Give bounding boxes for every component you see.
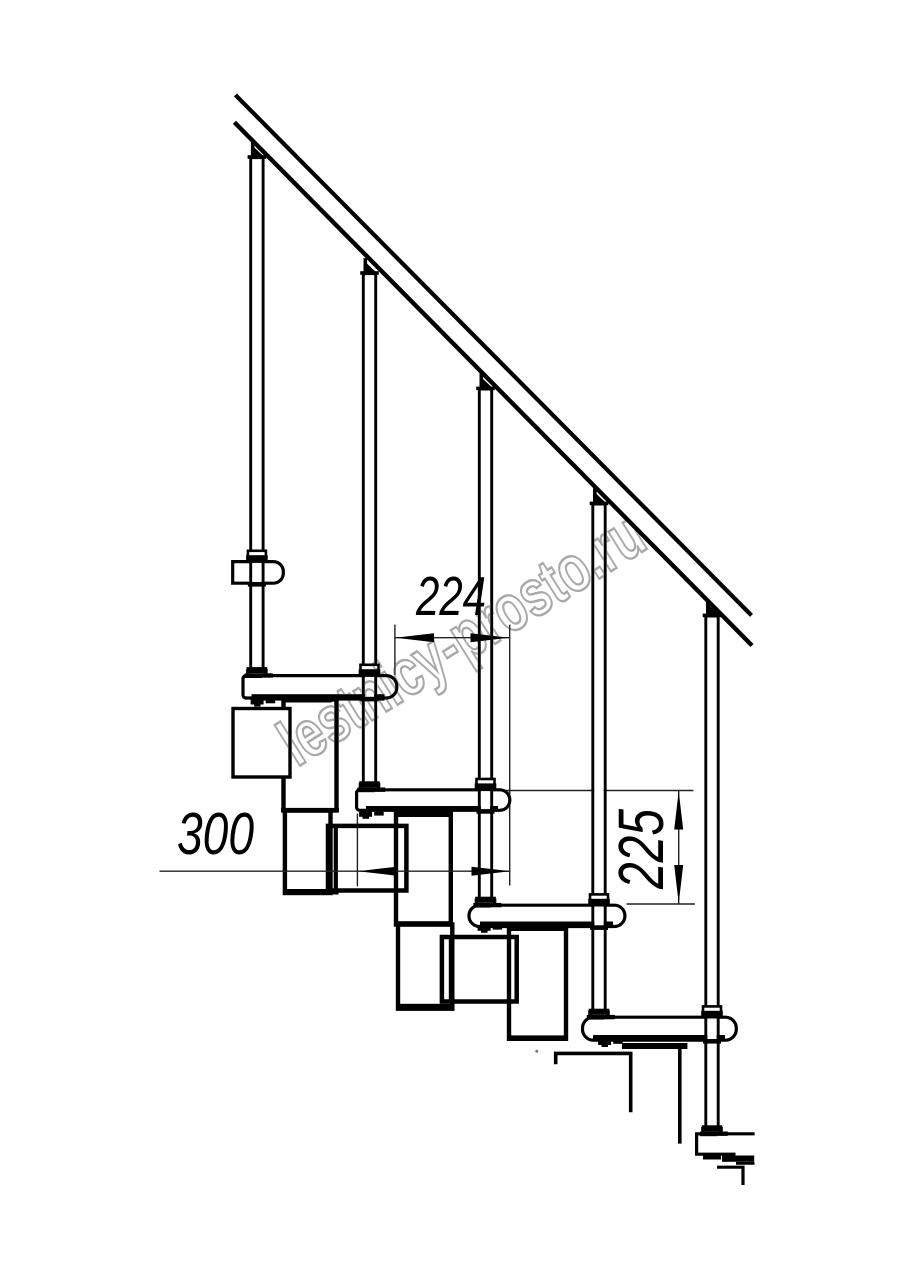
svg-text:225: 225 xyxy=(605,809,677,890)
svg-text:300: 300 xyxy=(177,801,254,867)
